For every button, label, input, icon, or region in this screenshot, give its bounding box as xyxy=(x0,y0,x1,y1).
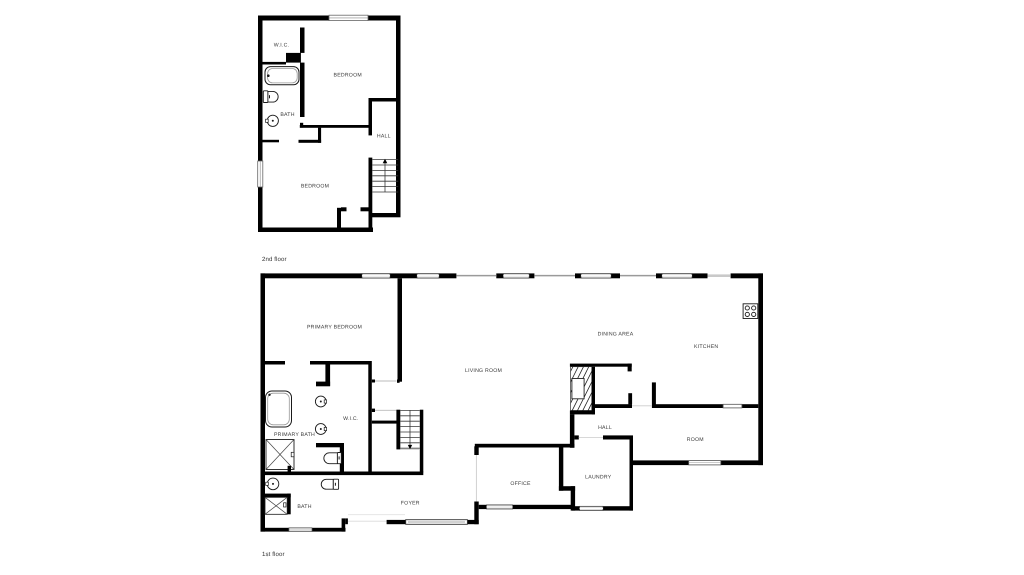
svg-text:W.I.C.: W.I.C. xyxy=(343,416,358,422)
svg-text:FOYER: FOYER xyxy=(401,501,420,507)
svg-text:HALL: HALL xyxy=(377,134,391,140)
svg-text:PRIMARY BATH: PRIMARY BATH xyxy=(274,432,315,438)
svg-text:ROOM: ROOM xyxy=(687,437,704,443)
svg-text:KITCHEN: KITCHEN xyxy=(694,344,718,350)
svg-text:BEDROOM: BEDROOM xyxy=(334,72,362,78)
svg-text:LAUNDRY: LAUNDRY xyxy=(585,474,612,480)
svg-text:DINING AREA: DINING AREA xyxy=(598,332,634,338)
svg-text:BEDROOM: BEDROOM xyxy=(301,184,329,190)
svg-text:LIVING ROOM: LIVING ROOM xyxy=(465,368,502,374)
svg-text:BATH: BATH xyxy=(297,504,311,510)
svg-text:W.I.C.: W.I.C. xyxy=(274,43,289,49)
svg-text:HALL: HALL xyxy=(598,425,612,431)
svg-text:BATH: BATH xyxy=(280,112,294,118)
svg-text:1st floor: 1st floor xyxy=(262,551,285,558)
svg-text:2nd floor: 2nd floor xyxy=(262,256,287,263)
svg-text:PRIMARY BEDROOM: PRIMARY BEDROOM xyxy=(307,325,362,331)
svg-text:OFFICE: OFFICE xyxy=(510,481,531,487)
